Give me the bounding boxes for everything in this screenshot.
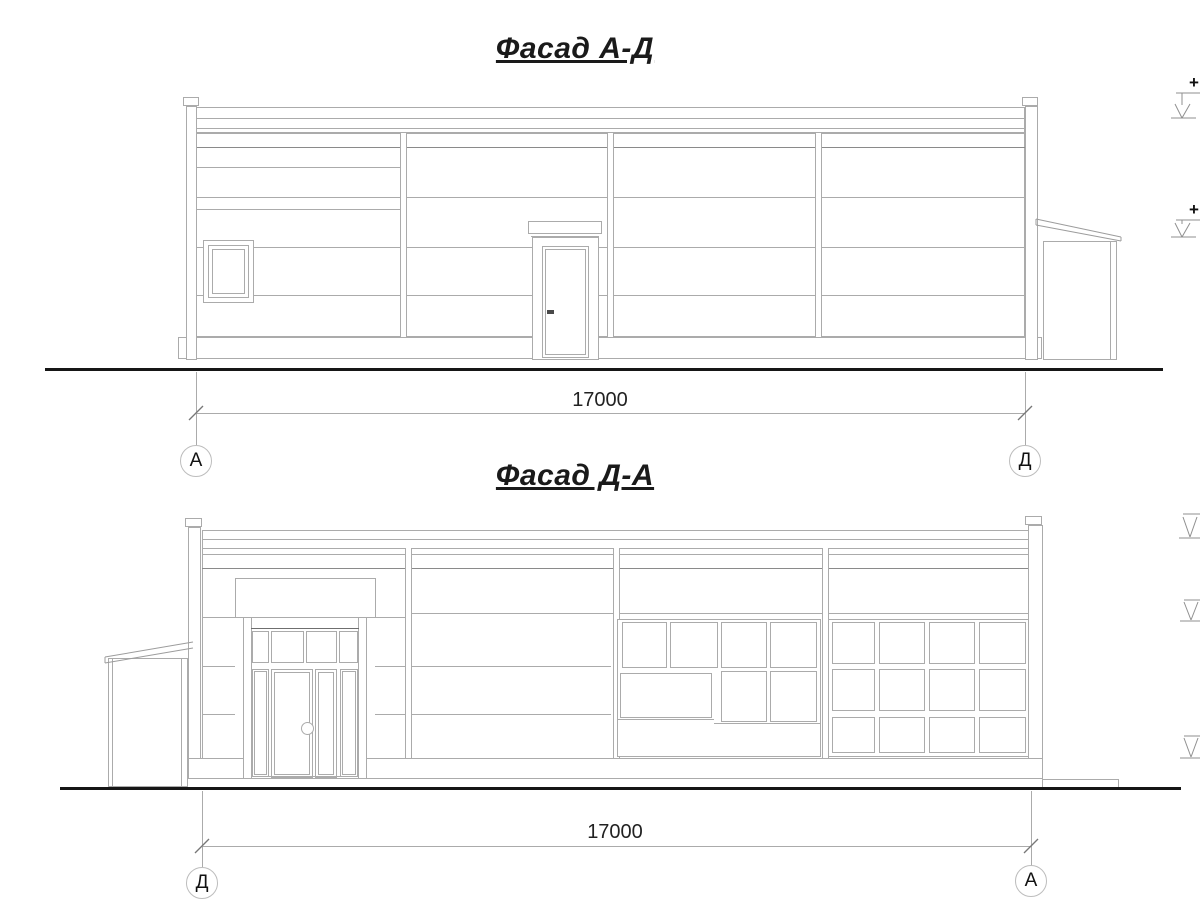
facade-da-view: Фасад Д-А [0, 0, 1200, 900]
window-pane [832, 717, 875, 753]
wall-mullion [405, 548, 412, 759]
entrance-door-leaf-inner [318, 672, 334, 775]
window-pane [879, 622, 925, 664]
extension-line [202, 791, 203, 867]
pilaster-cap [1025, 516, 1042, 525]
dimension-line [202, 846, 1032, 847]
door-handle [301, 722, 314, 735]
wall-recess-panel [620, 673, 712, 718]
transom-pane [306, 631, 337, 663]
pilaster [1028, 525, 1043, 759]
sidelight-glass [254, 671, 267, 775]
window-pane [622, 622, 667, 668]
entrance-stile [358, 617, 359, 779]
ground-line [60, 787, 1181, 790]
window-pane [879, 717, 925, 753]
axis-bubble-d: Д [186, 867, 218, 899]
panel-joint-line [411, 613, 1030, 614]
window-pane [929, 669, 975, 711]
window-pane [929, 622, 975, 664]
panel-joint-line [202, 714, 235, 715]
window-pane [770, 622, 817, 668]
pilaster [188, 527, 201, 759]
window-pane [979, 717, 1026, 753]
window-pane [879, 669, 925, 711]
window-pane [770, 671, 817, 722]
elevation-drawing-sheet: Фасад А-Д [0, 0, 1200, 900]
parapet-joint-line [202, 539, 1031, 540]
window-pane [670, 622, 718, 668]
annex-wall-line [181, 658, 182, 787]
sidelight-glass [342, 671, 356, 775]
window-pane [979, 622, 1026, 664]
window-pane [832, 669, 875, 711]
pilaster-cap [185, 518, 202, 527]
entrance-fascia-panel [235, 578, 376, 618]
window-pane [832, 622, 875, 664]
panel-joint-line [202, 666, 235, 667]
transom-pane [252, 631, 269, 663]
annex-wall-line [112, 658, 113, 787]
facade-da-title: Фасад Д-А [440, 459, 710, 493]
extension-line [1031, 791, 1032, 867]
sill-line [714, 723, 821, 724]
panel-joint-line [202, 617, 235, 618]
axis-bubble-a: А [1015, 865, 1047, 897]
transom-bar [251, 628, 359, 629]
sill-line [617, 719, 714, 720]
window-pane [929, 717, 975, 753]
transom-pane [339, 631, 358, 663]
transom-pane [271, 631, 304, 663]
window-pane [721, 671, 767, 722]
annex-body [108, 658, 188, 787]
threshold-line [251, 776, 359, 777]
dimension-value: 17000 [555, 821, 675, 844]
window-pane [979, 669, 1026, 711]
window-pane [721, 622, 767, 668]
